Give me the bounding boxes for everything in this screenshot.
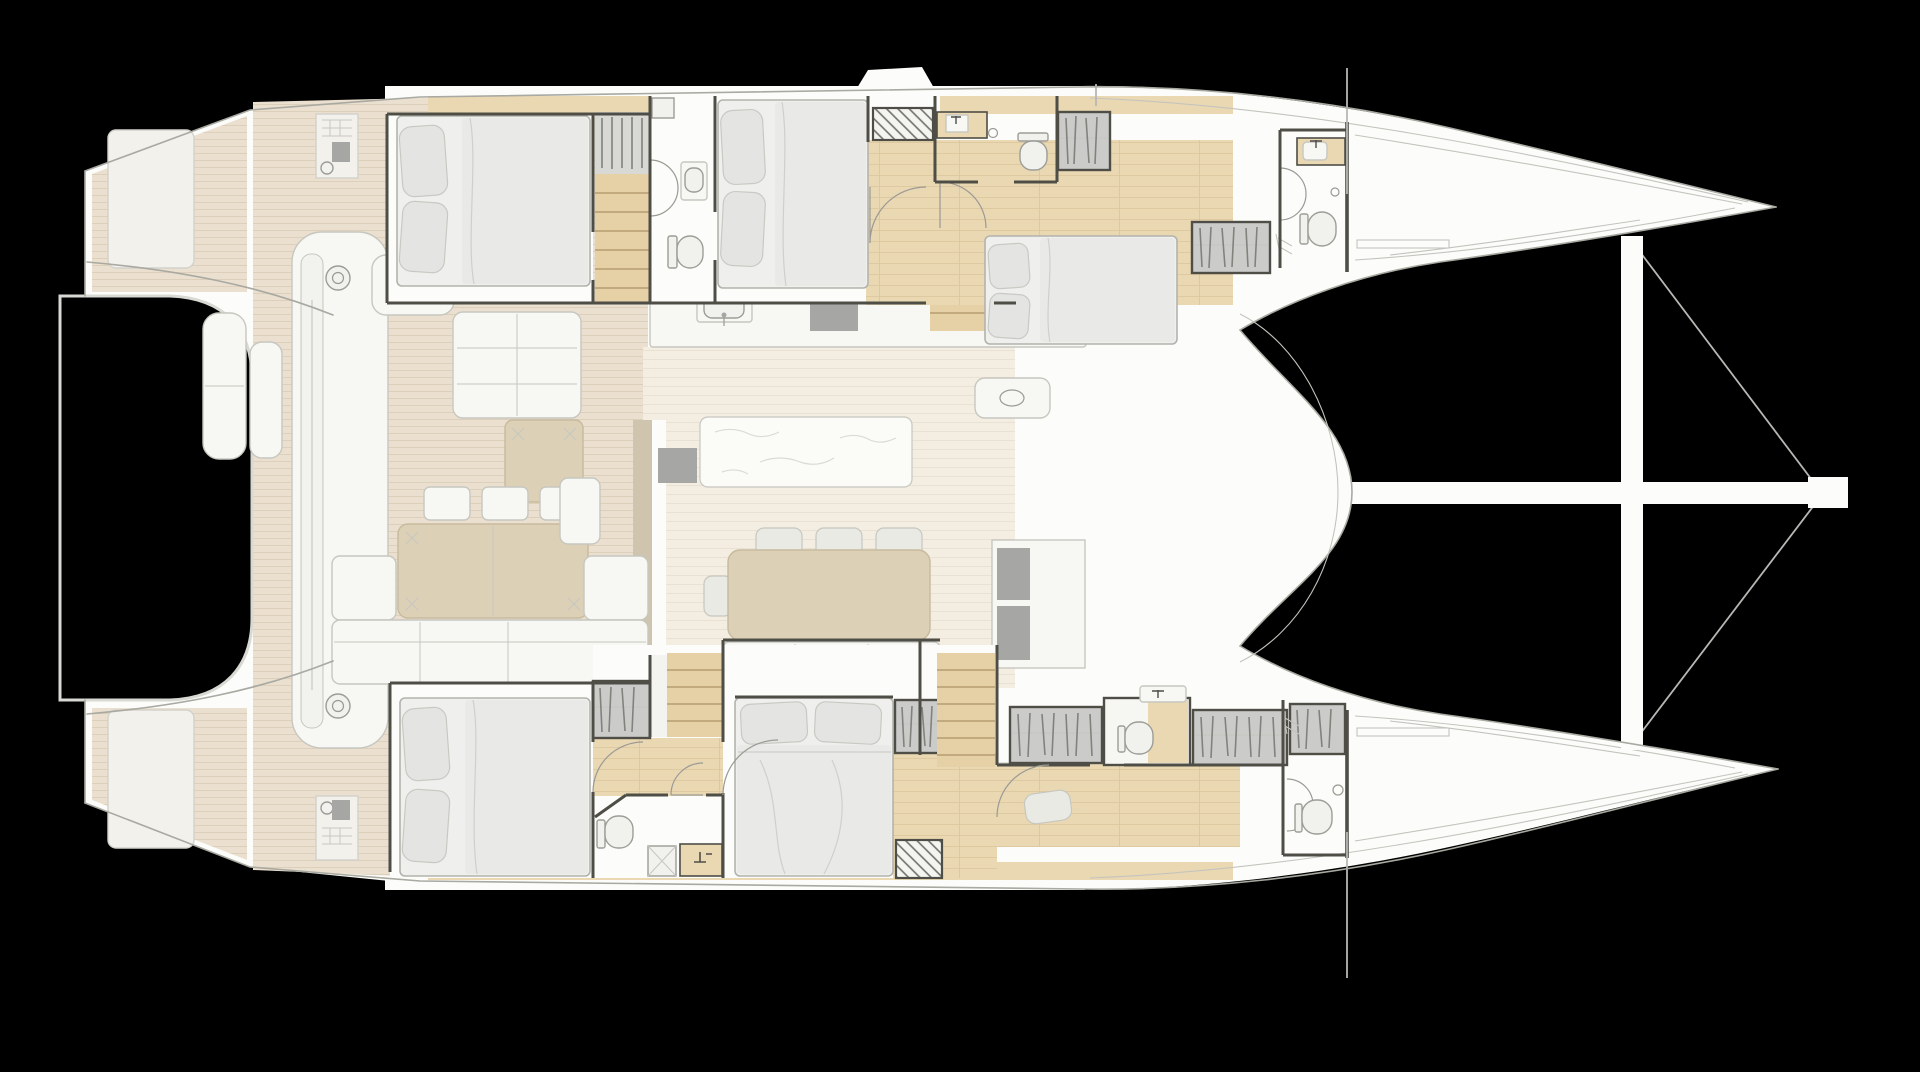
dining-table: [728, 550, 930, 640]
transom-panel-bottom: [108, 710, 194, 848]
wardrobe-stbd-aft: [593, 681, 650, 738]
winch-icon: [326, 266, 350, 290]
toilet-icon: [1300, 212, 1336, 246]
chaise-lounge: [453, 312, 581, 418]
toilet-icon: [597, 816, 633, 848]
boarding-step-wedge: [857, 67, 934, 88]
wardrobe-stbd-fwd-1: [1010, 707, 1102, 763]
port-mid-sink-cabinet: [937, 112, 987, 138]
wardrobe-port-vip: [1192, 222, 1270, 273]
cockpit-ottoman-table: [398, 524, 588, 618]
kitchen-island: [700, 417, 912, 487]
bed-port-aft: [397, 116, 590, 286]
sink-icon: [680, 844, 722, 876]
bed-port-vip: [985, 236, 1177, 344]
winch-icon: [326, 694, 350, 718]
toilet-icon: [1295, 800, 1332, 834]
toilet-alcove: [1104, 686, 1190, 765]
bed-stbd-aft: [400, 698, 590, 876]
technical-space-stbd: [896, 840, 942, 878]
catamaran-deck-plan: [0, 0, 1920, 1072]
bed-port-mid: [718, 100, 868, 288]
cockpit-side-panel: [560, 478, 600, 544]
stbd-corridor-floor: [593, 738, 723, 796]
toilet-icon: [668, 236, 703, 268]
desk-chair: [1023, 789, 1073, 825]
stairs-stbd-aft: [650, 653, 722, 737]
chart-module: [658, 448, 697, 483]
bowsprit-tip: [1808, 477, 1848, 508]
tv-cabinet: [992, 540, 1085, 668]
toilet-icon: [1118, 722, 1153, 754]
deck-console-bottom: [316, 796, 358, 860]
day-head-console: [975, 378, 1050, 418]
wardrobe-port-mid: [1058, 112, 1110, 170]
deck-console-top: [316, 114, 358, 178]
back-cushions: [424, 487, 570, 520]
transom-panel-top: [108, 130, 194, 268]
toilet-icon: [1018, 133, 1048, 170]
yacht-floor-plan-canvas: [0, 0, 1920, 1072]
bowsprit: [1237, 482, 1812, 504]
wardrobe-master: [895, 700, 940, 753]
stairs-saloon-to-stbd-hull: [937, 653, 995, 767]
stairs-port-aft: [595, 112, 650, 303]
shower-tray-icon: [648, 846, 676, 876]
deck-lounger-left-2: [250, 342, 282, 458]
wardrobe-stbd-fwd-2: [1193, 710, 1287, 765]
bed-master: [735, 698, 893, 876]
technical-space-port: [873, 108, 933, 140]
